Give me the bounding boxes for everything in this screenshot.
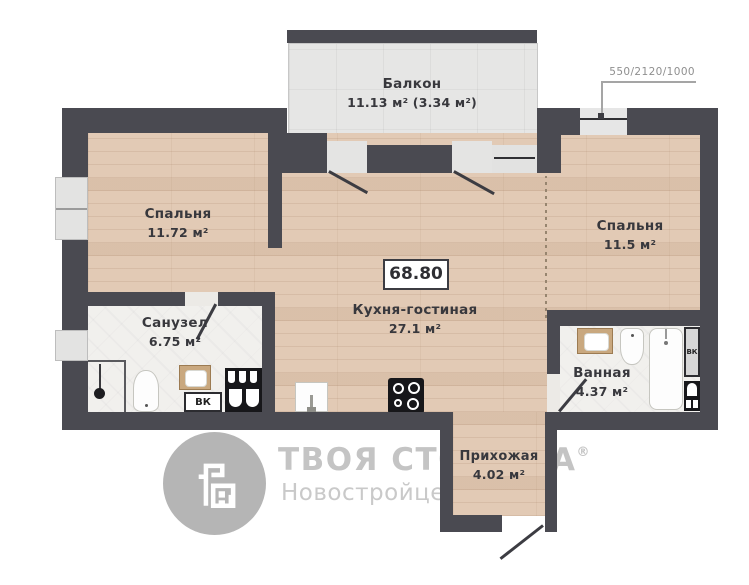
room-label-kitchen-living: Кухня-гостиная 27.1 м² — [320, 302, 510, 336]
brand-logo-icon — [186, 455, 244, 513]
radiator-tab — [228, 371, 235, 383]
room-label-bedroom-left: Спальня 11.72 м² — [88, 206, 268, 240]
wall-bottom-left — [62, 412, 453, 430]
room-name: Кухня-гостиная — [320, 302, 510, 318]
toilet-left — [133, 370, 159, 412]
dimension-leader-vertical — [601, 81, 603, 117]
sink-basin-right — [584, 333, 609, 351]
door-opening-bathroom-left — [185, 292, 218, 306]
room-area: 27.1 м² — [320, 321, 510, 336]
bathtub — [649, 328, 683, 410]
room-name: Спальня — [88, 206, 268, 222]
vk-shaft-left: ВК — [184, 392, 222, 412]
burner — [407, 398, 419, 410]
toilet-right — [620, 328, 644, 365]
door-opening-balcony-1 — [327, 141, 367, 173]
total-area-badge: 68.80 — [383, 259, 449, 290]
pipe-square — [686, 400, 691, 408]
registered-mark: ® — [576, 445, 591, 460]
wall-balcony-pier-left — [277, 133, 327, 173]
radiator-tab — [250, 371, 257, 383]
wall-bathroom-left-top-b — [218, 292, 275, 306]
room-divider-dashed-line — [545, 176, 547, 318]
room-area: 11.13 м² (3.34 м²) — [287, 95, 537, 110]
dimension-leader-dot — [598, 113, 604, 119]
room-label-hallway: Прихожая 4.02 м² — [453, 449, 545, 482]
door-opening-balcony-2 — [452, 141, 492, 173]
tub-faucet-line — [665, 329, 667, 339]
tub-faucet-dot — [664, 341, 668, 345]
room-area: 4.02 м² — [453, 467, 545, 482]
wall-left — [62, 108, 88, 430]
wall-hallway-bottom — [440, 515, 502, 532]
wall-balcony-pier-mid — [367, 145, 452, 173]
room-name: Санузел — [100, 315, 250, 331]
dimension-note: 550/2120/1000 — [595, 66, 695, 78]
wall-balcony-top — [287, 30, 537, 43]
kitchen-sink — [295, 382, 328, 412]
wall-top-right — [537, 108, 718, 135]
window-divider — [56, 208, 87, 210]
brand-logo — [163, 432, 266, 535]
burner — [408, 382, 420, 394]
room-label-bathroom-left: Санузел 6.75 м² — [100, 315, 250, 349]
room-label-balcony: Балкон 11.13 м² (3.34 м²) — [287, 76, 537, 110]
radiator-tab — [239, 371, 246, 383]
radiator-segment — [229, 389, 242, 407]
pipe-riser-unit — [684, 381, 700, 411]
door-swing-entrance — [500, 524, 544, 560]
room-area: 6.75 м² — [100, 334, 250, 349]
room-name: Ванная — [557, 365, 647, 381]
room-area: 4.37 м² — [557, 384, 647, 399]
burner — [393, 383, 404, 394]
floor-plan: ТВОЯ СТОЛИЦА® Новостройцентр ВК — [0, 0, 749, 585]
room-label-bedroom-right: Спальня 11.5 м² — [560, 218, 700, 252]
room-name: Прихожая — [453, 449, 545, 464]
wall-bathroom-left-side — [262, 306, 275, 412]
cooktop-icon — [388, 378, 424, 414]
toilet-right-flush-dot — [631, 334, 634, 337]
window-kitchen-balcony — [492, 145, 537, 173]
room-name: Спальня — [560, 218, 700, 234]
window-bathroom-left — [55, 330, 88, 361]
room-name: Балкон — [287, 76, 537, 92]
wall-right — [700, 108, 718, 430]
sink-vanity-left — [179, 365, 211, 390]
wall-bedroom-left-partition — [268, 133, 282, 248]
vk-shaft-right: ВК — [684, 327, 700, 377]
shower-enclosure-line-v — [124, 360, 126, 412]
wall-bathroom-left-top-a — [88, 292, 185, 306]
vk-shaft-right-label: ВК — [686, 348, 697, 356]
wall-bottom-right — [545, 412, 718, 430]
shower-enclosure-line-h — [88, 360, 126, 362]
radiator-segment — [246, 389, 259, 407]
burner — [394, 399, 402, 407]
wall-bathroom-right-top — [547, 310, 718, 326]
room-area: 11.72 м² — [88, 225, 268, 240]
wall-top-left — [62, 108, 287, 133]
vk-shaft-left-label: ВК — [195, 397, 211, 408]
pipe-square — [693, 400, 698, 408]
wall-hallway-right — [545, 430, 557, 532]
sink-vanity-right — [577, 328, 613, 354]
pipe-arch — [687, 383, 697, 396]
room-area: 11.5 м² — [560, 237, 700, 252]
room-label-bathroom-right: Ванная 4.37 м² — [557, 365, 647, 399]
sink-basin-left — [185, 370, 207, 387]
toilet-left-flush-dot — [145, 404, 148, 407]
window-bedroom-left — [55, 177, 88, 240]
radiator-unit — [225, 368, 262, 412]
wall-balcony-pier-right — [537, 135, 561, 173]
dimension-leader-underline — [601, 81, 696, 83]
shower-head-icon — [94, 388, 105, 399]
shower-head-stem — [99, 364, 101, 390]
window-sill-line — [494, 157, 535, 159]
